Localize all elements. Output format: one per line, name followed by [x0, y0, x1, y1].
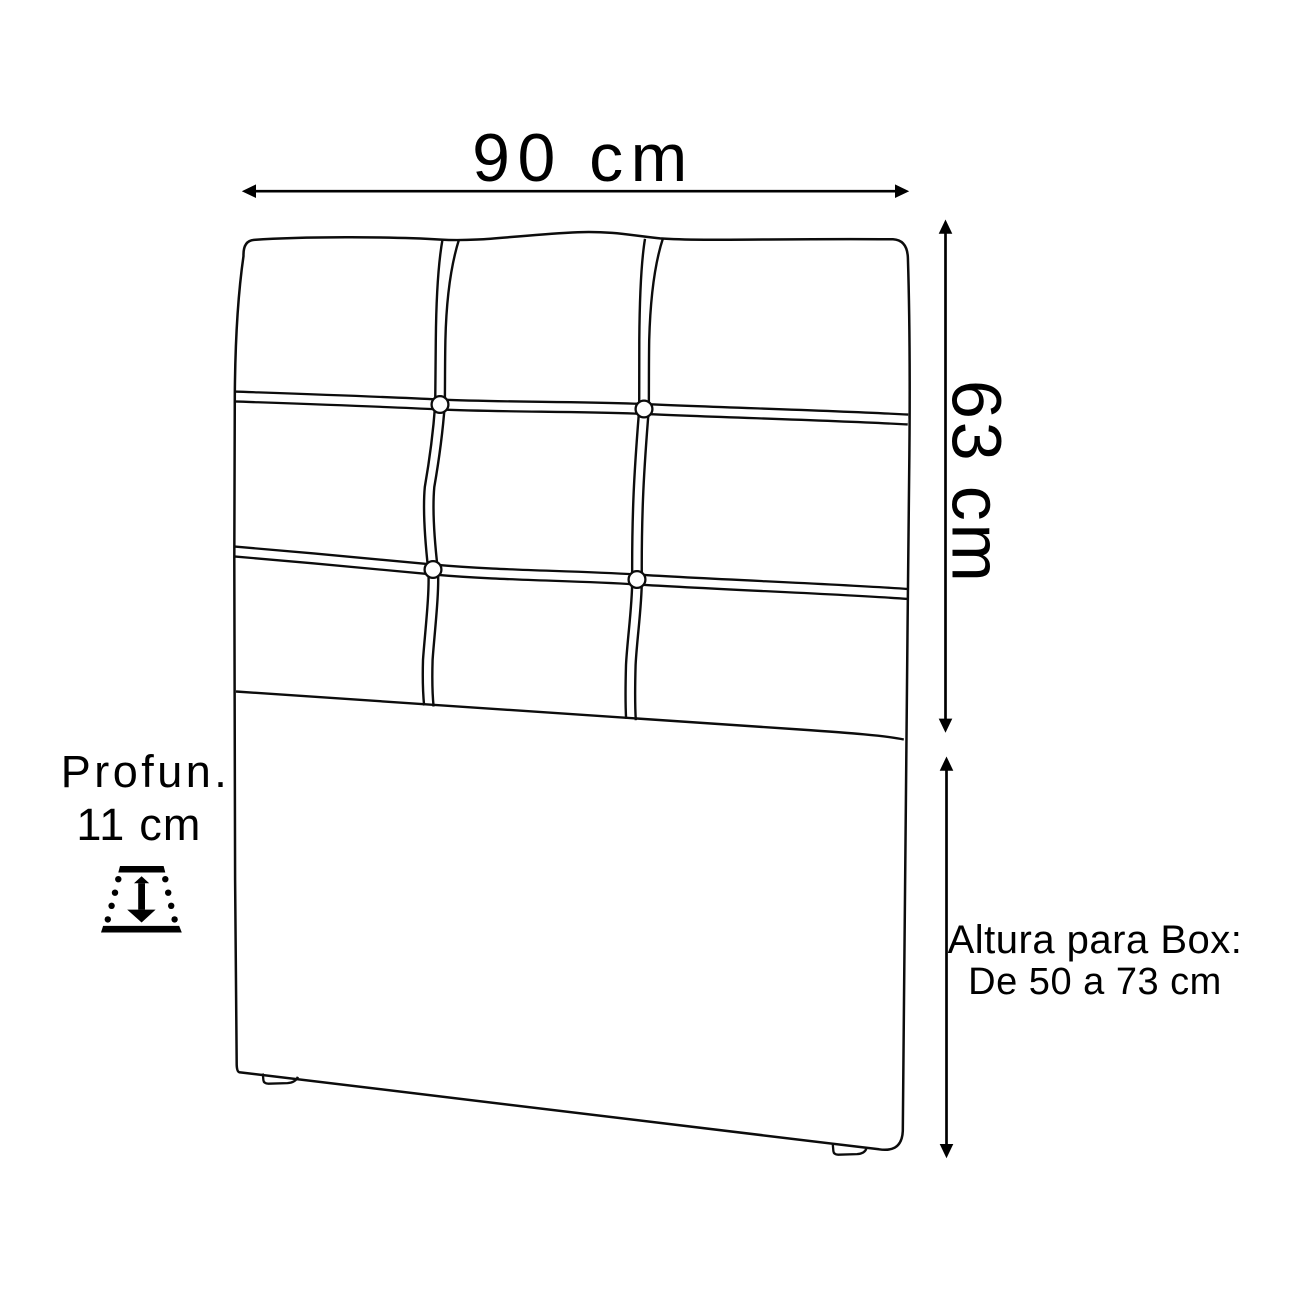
- svg-text:De 50 a 73 cm: De 50 a 73 cm: [968, 961, 1222, 1003]
- svg-text:Altura para Box:: Altura para Box:: [948, 918, 1243, 962]
- svg-text:11 cm: 11 cm: [76, 799, 201, 850]
- svg-text:63 cm: 63 cm: [938, 380, 1016, 585]
- svg-text:Profun.: Profun.: [61, 746, 231, 797]
- svg-text:90 cm: 90 cm: [472, 120, 695, 196]
